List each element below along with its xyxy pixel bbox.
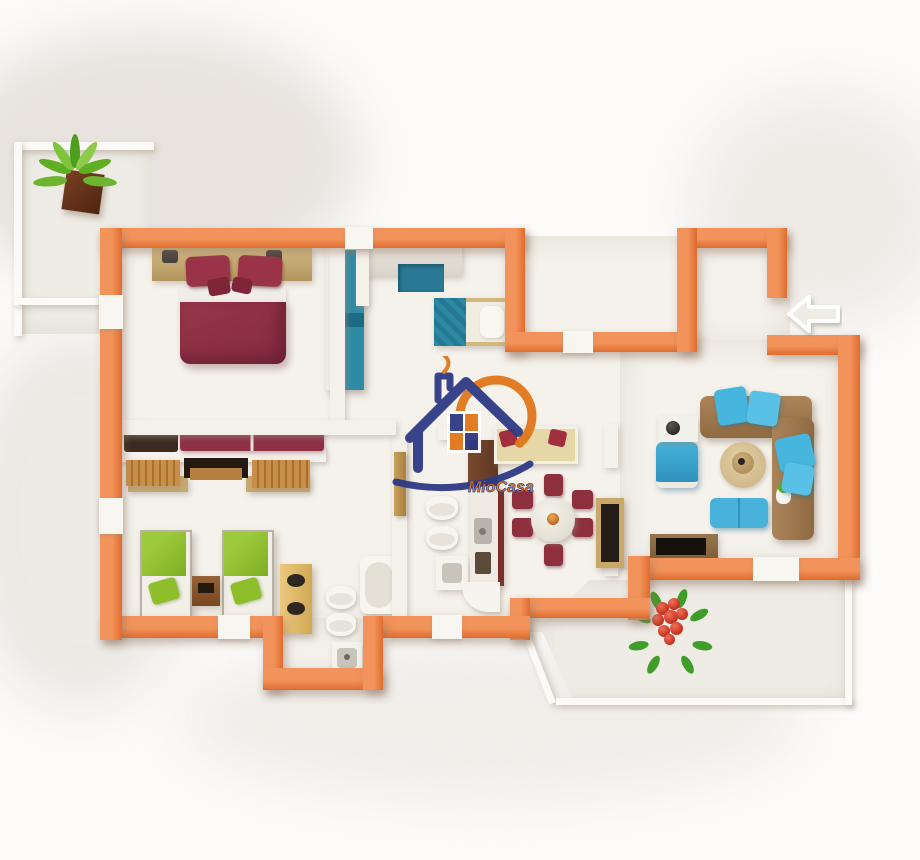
wall-bottom-mid: [510, 598, 650, 618]
blue-armchair: [656, 442, 698, 488]
blue-ottomans: [710, 498, 768, 528]
tv: [656, 538, 706, 555]
table-lamp: [666, 421, 680, 435]
kids-wardrobe: [280, 564, 312, 634]
single-bed-pillow: [480, 306, 504, 338]
nightstand-item: [198, 583, 214, 593]
wall-living-bottom: [630, 558, 860, 580]
green-pillow: [230, 577, 263, 606]
kids-bed: [140, 530, 192, 618]
cooktop: [475, 552, 491, 574]
bidet: [326, 613, 356, 636]
red-flower: [664, 634, 675, 645]
red-flower: [676, 608, 688, 620]
red-flower-plant: [642, 588, 702, 652]
wall-top: [100, 228, 525, 248]
wall-hall: [505, 332, 697, 352]
logo-smoke: [444, 356, 449, 372]
single-bed-blanket: [434, 298, 466, 346]
door-sill: [432, 615, 462, 639]
display-cabinet: [596, 498, 624, 568]
side-table: [658, 416, 698, 442]
bench-drawer-front: [190, 468, 242, 480]
terrace-parapet-wall: [556, 698, 852, 705]
red-flower: [670, 622, 683, 635]
wall-left: [100, 228, 122, 640]
table-lamp: [162, 250, 178, 263]
faucet: [479, 528, 486, 535]
dining-table: [531, 498, 575, 542]
balcony-divider-wall: [14, 298, 104, 305]
divider-wall: [604, 424, 618, 468]
entrance-arrow: [786, 290, 842, 338]
table-centerpiece: [547, 513, 559, 525]
dining-chair: [572, 490, 593, 509]
wall-entry-left: [677, 228, 697, 352]
balcony-parapet-wall: [14, 142, 154, 150]
coffee-table: [732, 452, 754, 474]
bedroom-divider-wall: [330, 248, 345, 422]
desk-chair: [398, 264, 444, 292]
potted-plant: [40, 150, 110, 220]
kids-nightstand: [192, 576, 220, 606]
table-decor: [738, 458, 745, 465]
double-bed-duvet: [180, 302, 286, 364]
green-duvet: [224, 532, 268, 576]
floor-plan-render: MioCasa: [0, 0, 920, 860]
door-sill: [563, 331, 593, 353]
door-sill: [99, 295, 123, 329]
door-sill: [99, 498, 123, 534]
dining-chair: [512, 518, 533, 537]
dining-chair: [544, 544, 563, 566]
cabinet-front: [601, 504, 619, 562]
faucet: [344, 654, 350, 660]
study-wall-stub: [356, 248, 369, 306]
bedroom-divider-wall: [120, 420, 396, 435]
balcony-parapet-wall: [14, 142, 22, 336]
sofa-cushion-blue: [746, 390, 781, 427]
kitchen-counter: [470, 490, 504, 586]
toilet: [326, 586, 356, 609]
bathtub-basin: [365, 562, 393, 608]
terrace-door-sill: [753, 557, 799, 581]
bench-cabinet: [126, 460, 180, 486]
logo-window: [447, 411, 481, 453]
wardrobe-handle: [287, 602, 305, 615]
bidet: [426, 526, 458, 550]
door-sill: [218, 615, 250, 639]
wall-bath-right: [363, 616, 383, 690]
green-duvet: [142, 532, 186, 576]
bench-cabinet: [252, 460, 310, 488]
sofa-cushion-blue: [781, 462, 816, 497]
wall-right: [838, 335, 860, 580]
sofa-cushion-blue: [713, 386, 750, 427]
dining-chair: [572, 518, 593, 537]
terrace-parapet-wall: [845, 580, 852, 705]
watermark-logo: MioCasa: [392, 356, 560, 504]
door-sill: [345, 227, 373, 249]
wardrobe-handle: [287, 574, 305, 587]
green-pillow: [148, 577, 181, 606]
basin: [442, 563, 462, 583]
wall-entry-right: [767, 228, 787, 298]
watermark-text: MioCasa: [468, 479, 534, 496]
kids-bed: [222, 530, 274, 618]
